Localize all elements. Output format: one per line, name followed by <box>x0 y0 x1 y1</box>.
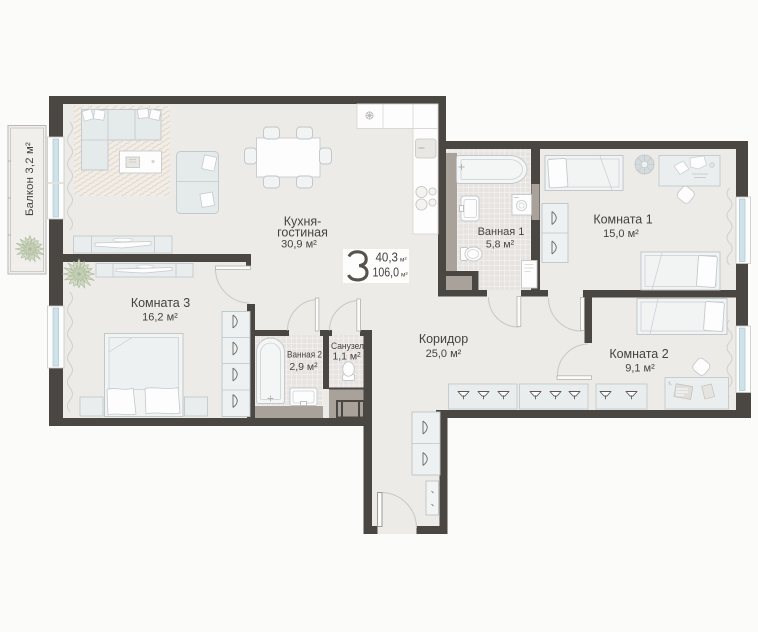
svg-text:40,3: 40,3 <box>376 251 399 265</box>
svg-text:5,8 м²: 5,8 м² <box>486 239 515 251</box>
svg-text:1,1 м²: 1,1 м² <box>332 351 361 363</box>
svg-text:Ванная 2: Ванная 2 <box>287 350 322 360</box>
svg-text:м²: м² <box>401 272 408 279</box>
svg-text:Коридор: Коридор <box>419 332 468 346</box>
svg-text:Комната 3: Комната 3 <box>131 296 190 310</box>
svg-text:Ванная 1: Ванная 1 <box>478 226 525 238</box>
svg-text:16,2 м²: 16,2 м² <box>142 312 178 324</box>
svg-text:Комната 1: Комната 1 <box>593 213 652 227</box>
svg-text:Балкон 3,2 м²: Балкон 3,2 м² <box>24 142 36 216</box>
svg-text:Санузел: Санузел <box>331 341 364 351</box>
svg-text:25,0 м²: 25,0 м² <box>426 348 462 360</box>
svg-text:9,1 м²: 9,1 м² <box>625 363 655 375</box>
svg-text:Комната 2: Комната 2 <box>609 347 668 361</box>
svg-text:30,9 м²: 30,9 м² <box>281 239 317 251</box>
svg-text:м²: м² <box>400 257 407 264</box>
svg-text:гостиная: гостиная <box>277 226 328 240</box>
svg-text:106,0: 106,0 <box>373 266 400 280</box>
svg-text:2,9 м²: 2,9 м² <box>289 361 318 373</box>
svg-text:15,0 м²: 15,0 м² <box>603 228 639 240</box>
